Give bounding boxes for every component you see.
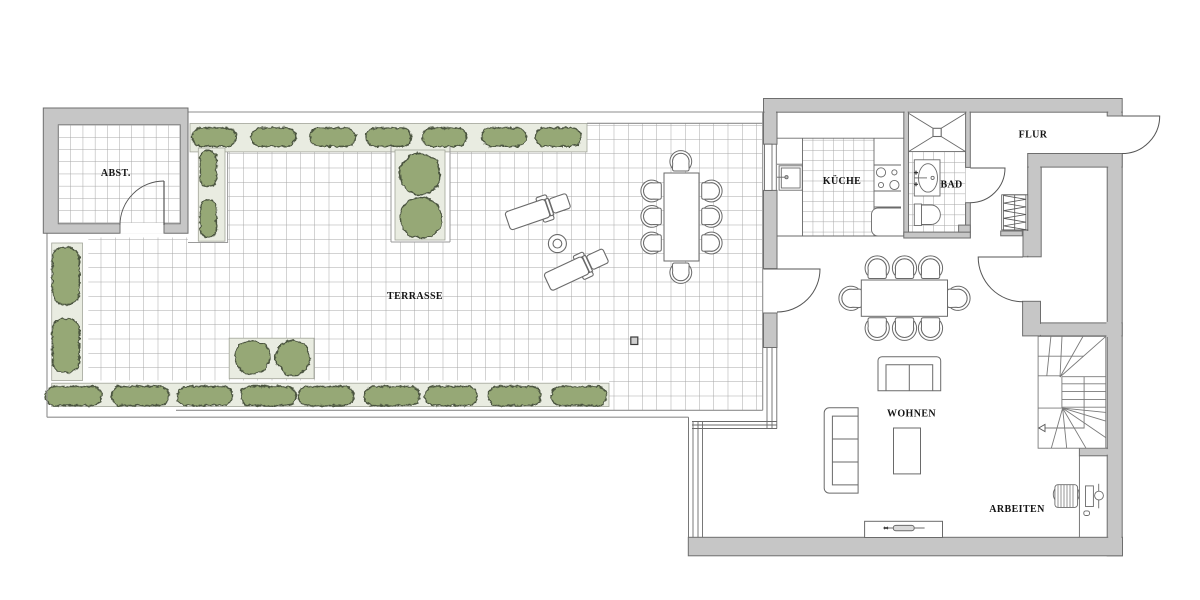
svg-text:KÜCHE: KÜCHE [823,174,861,187]
svg-text:ABST.: ABST. [101,168,131,179]
svg-text:WOHNEN: WOHNEN [887,409,936,420]
svg-text:BAD: BAD [940,180,962,191]
svg-text:FLUR: FLUR [1019,130,1048,141]
svg-text:ARBEITEN: ARBEITEN [989,504,1045,515]
svg-text:TERRASSE: TERRASSE [387,291,443,302]
